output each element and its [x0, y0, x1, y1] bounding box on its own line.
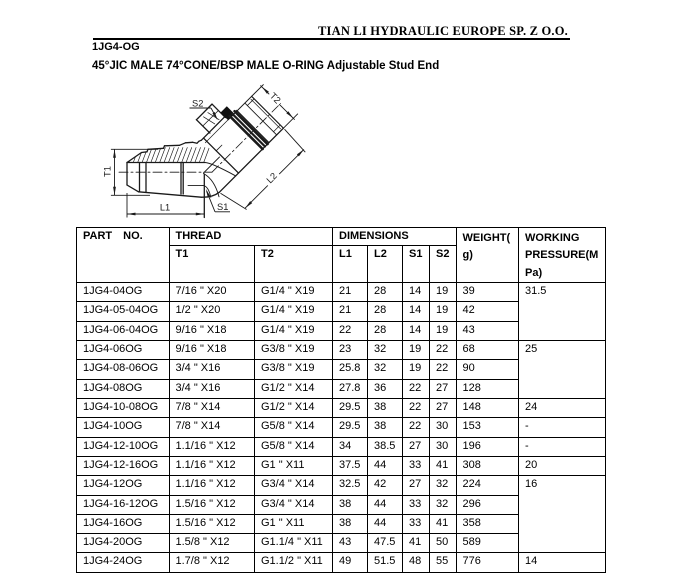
svg-text:T1: T1 — [102, 166, 112, 177]
svg-text:S1: S1 — [217, 202, 228, 212]
svg-text:L1: L1 — [160, 203, 170, 213]
svg-text:S2: S2 — [192, 99, 203, 109]
